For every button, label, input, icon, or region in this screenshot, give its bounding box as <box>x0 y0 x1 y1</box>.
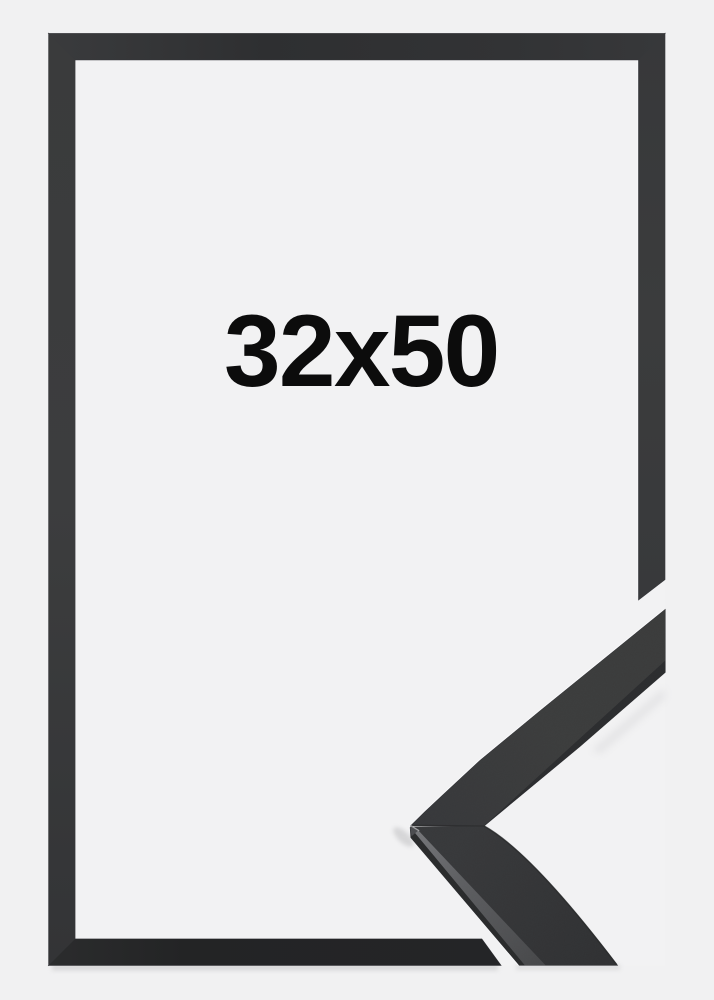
svg-text:32x50: 32x50 <box>224 294 499 408</box>
